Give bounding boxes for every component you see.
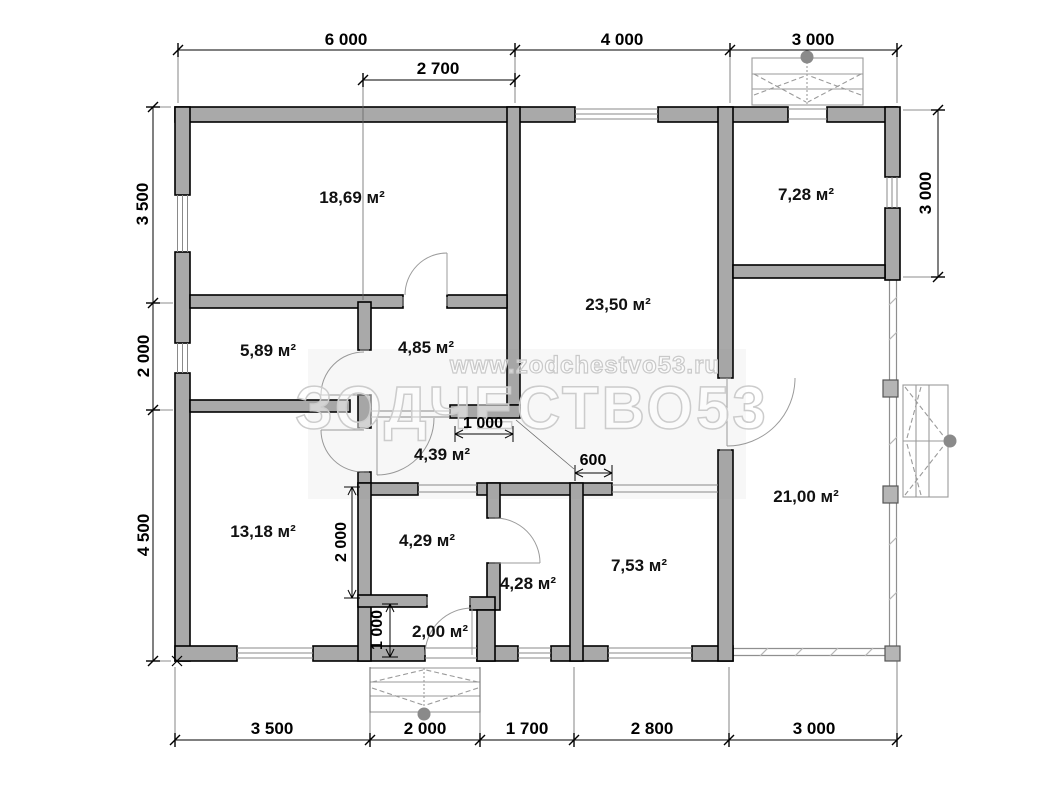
room-label-2: 7,28 м²	[778, 185, 834, 205]
window-top	[575, 109, 658, 119]
dim-left-2: 4 500	[134, 514, 154, 557]
room-label-0: 18,69 м²	[319, 188, 385, 208]
dim-bottom-1: 2 000	[404, 719, 447, 739]
window-right	[887, 177, 897, 208]
room-label-10: 7,53 м²	[611, 556, 667, 576]
dim-bottom-0: 3 500	[251, 719, 294, 739]
room-label-9: 2,00 м²	[412, 622, 468, 642]
dim-bottom-2: 1 700	[506, 719, 549, 739]
window-bottom-1	[237, 648, 313, 658]
room-label-8: 4,28 м²	[500, 574, 556, 594]
window-left-2	[178, 343, 188, 373]
room-label-3: 5,89 м²	[240, 341, 296, 361]
room-label-5: 4,39 м²	[414, 445, 470, 465]
window-left-1	[178, 195, 188, 252]
door-room-1869	[405, 253, 447, 295]
porch-top	[752, 51, 863, 106]
dim-interior-room-height: 2 000	[333, 522, 351, 562]
dim-interior-entry-depth: 1 000	[369, 610, 387, 650]
dim-top-secondary: 2 700	[417, 59, 460, 79]
dim-top-1: 4 000	[601, 30, 644, 50]
door-room-428	[495, 518, 540, 563]
floor-plan: www.zodchestvo53.ru ЗОДЧЕСТВО53 18,69 м²…	[0, 0, 1054, 791]
room-label-4: 4,85 м²	[398, 338, 454, 358]
dim-bottom-3: 2 800	[631, 719, 674, 739]
dim-top-2: 3 000	[792, 30, 835, 50]
porch-top-post	[801, 51, 814, 64]
room-label-1: 23,50 м²	[585, 295, 651, 315]
dim-right: 3 000	[916, 172, 936, 215]
room-label-11: 21,00 м²	[773, 487, 839, 507]
veranda-thin-walls	[733, 280, 900, 661]
window-bottom-2	[518, 648, 551, 658]
room-label-7: 4,29 м²	[399, 531, 455, 551]
watermark-brand: ЗОДЧЕСТВО53	[295, 374, 769, 443]
dim-interior-wall-stub: 600	[580, 452, 607, 470]
opening-top-door	[788, 109, 827, 119]
window-bottom-3	[608, 648, 692, 658]
porch-right-post	[944, 435, 957, 448]
dim-bottom-4: 3 000	[793, 719, 836, 739]
dim-interior-hall-width: 1 000	[463, 415, 503, 433]
dim-top-0: 6 000	[325, 30, 368, 50]
dim-left-1: 2 000	[134, 335, 154, 378]
porch-bottom	[370, 668, 480, 721]
dim-left-0: 3 500	[133, 183, 153, 226]
room-label-6: 13,18 м²	[230, 522, 296, 542]
porch-right	[903, 385, 957, 497]
